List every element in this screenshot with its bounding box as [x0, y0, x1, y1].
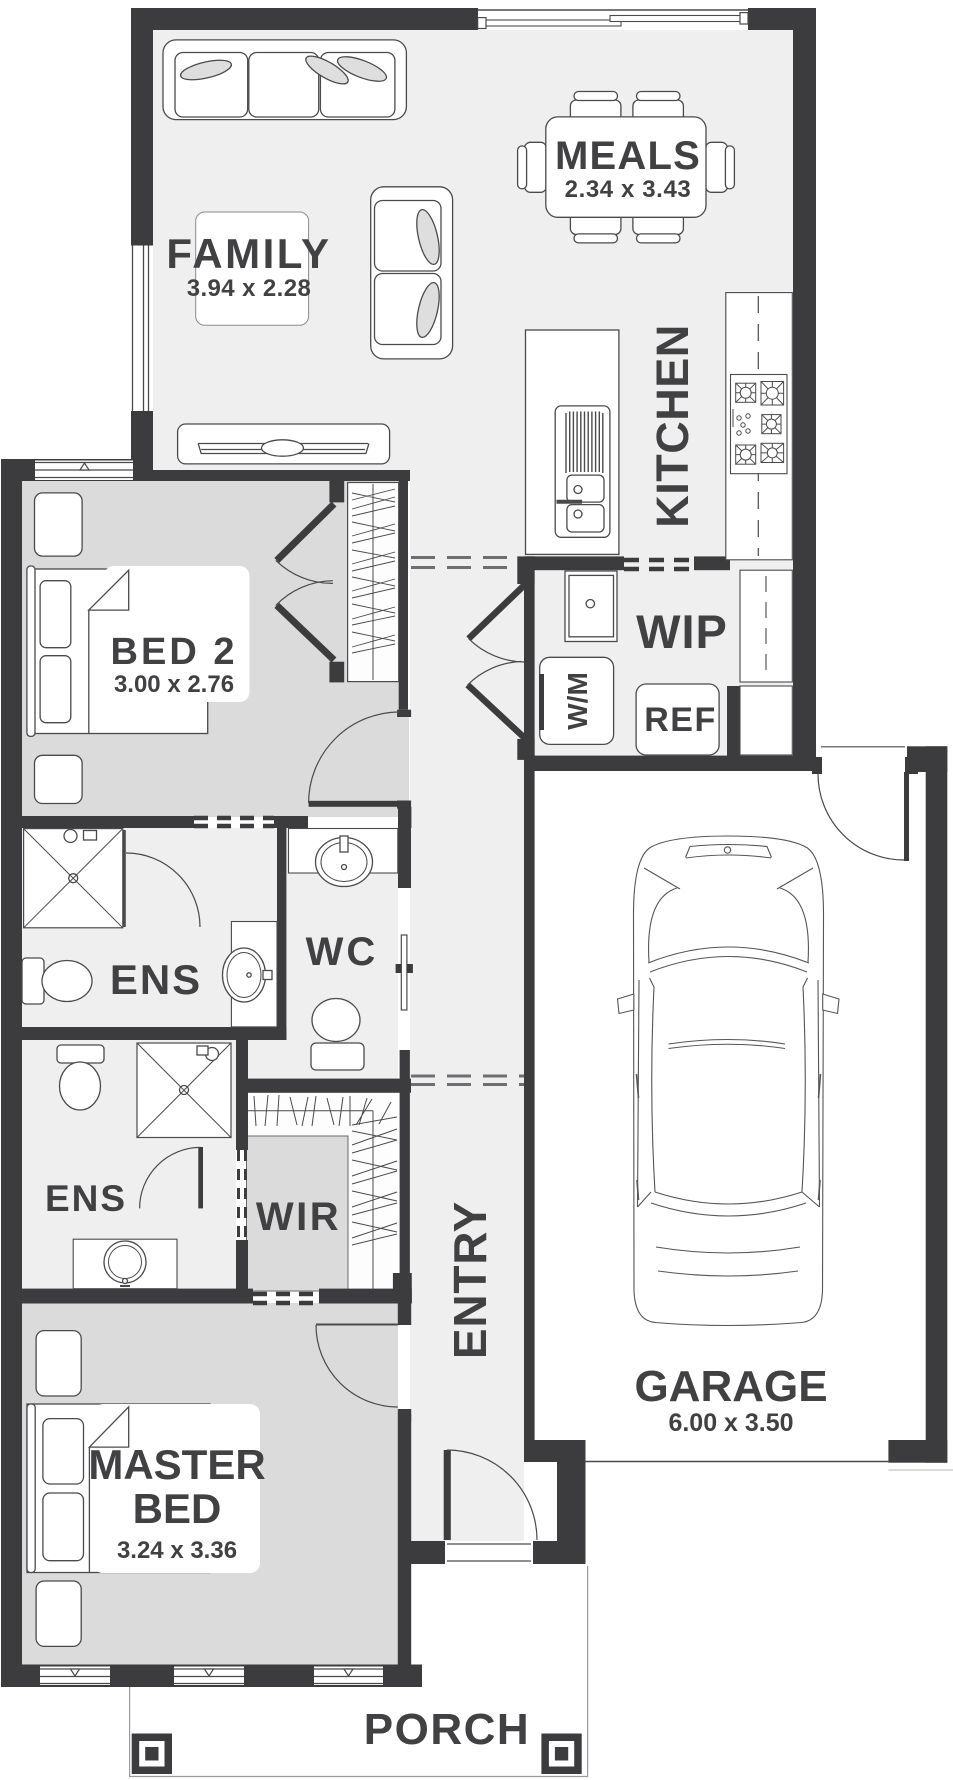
svg-text:WIP: WIP: [636, 605, 728, 658]
svg-text:ENS: ENS: [45, 1178, 127, 1219]
svg-text:W/M: W/M: [562, 672, 593, 730]
svg-text:WC: WC: [306, 930, 379, 974]
svg-text:KITCHEN: KITCHEN: [647, 324, 698, 528]
svg-text:GARAGE: GARAGE: [634, 1362, 827, 1411]
svg-text:FAMILY: FAMILY: [166, 230, 331, 277]
svg-text:BED: BED: [133, 1485, 222, 1532]
svg-text:BED 2: BED 2: [111, 631, 238, 673]
svg-text:6.00 x 3.50: 6.00 x 3.50: [668, 1409, 793, 1437]
svg-text:3.00 x 2.76: 3.00 x 2.76: [114, 671, 234, 698]
svg-text:PORCH: PORCH: [364, 1705, 530, 1754]
svg-text:2.34 x 3.43: 2.34 x 3.43: [565, 176, 692, 203]
svg-text:MASTER: MASTER: [88, 1441, 265, 1488]
svg-text:WIR: WIR: [256, 1195, 341, 1239]
svg-text:3.24 x 3.36: 3.24 x 3.36: [117, 1537, 237, 1564]
svg-text:REF: REF: [644, 701, 717, 739]
svg-text:ENS: ENS: [110, 956, 202, 1003]
svg-text:ENTRY: ENTRY: [444, 1201, 496, 1359]
svg-text:MEALS: MEALS: [555, 134, 701, 178]
svg-text:3.94 x 2.28: 3.94 x 2.28: [187, 275, 312, 302]
